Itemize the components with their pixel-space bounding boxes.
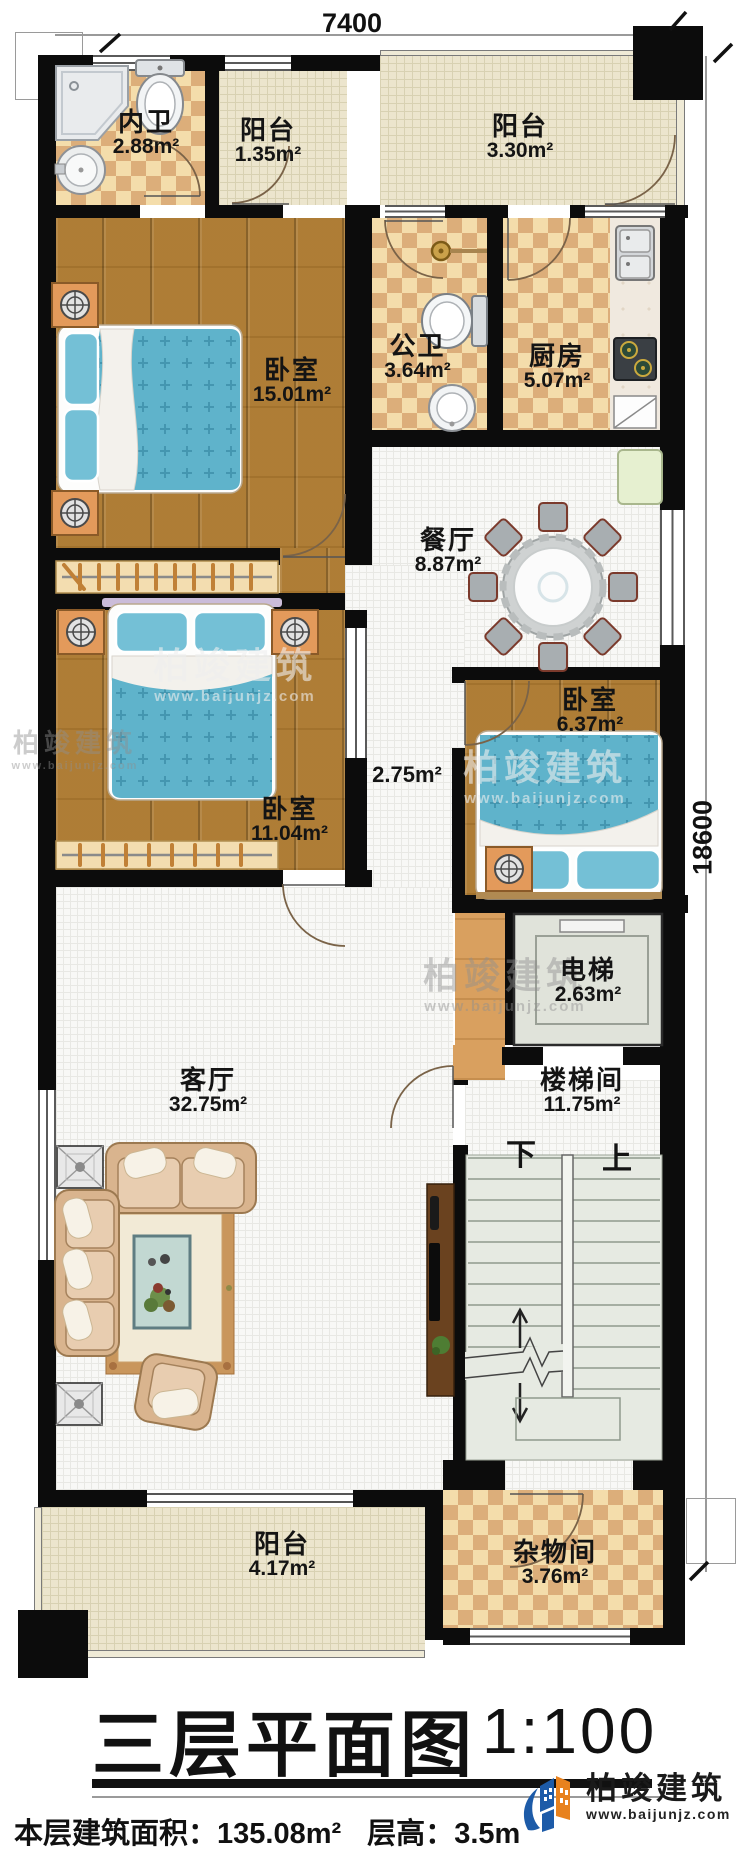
- window-public-bath: [385, 205, 445, 218]
- room-label-bedroom-small: 卧室 6.37m²: [544, 686, 636, 737]
- room-name: 客厅: [152, 1066, 264, 1094]
- window-storage: [470, 1628, 630, 1645]
- wall: [453, 1080, 468, 1085]
- window-kitchen: [585, 205, 665, 218]
- stairs-down-label: 下: [506, 1130, 536, 1174]
- room-area: 3.76m²: [496, 1566, 614, 1589]
- wall: [623, 1047, 663, 1065]
- wall: [502, 1047, 543, 1065]
- room-area: 4.17m²: [232, 1558, 332, 1581]
- stairs-up-label: 上: [602, 1134, 632, 1178]
- room-name: 杂物间: [496, 1538, 614, 1566]
- wall: [38, 593, 345, 610]
- wall: [445, 205, 508, 218]
- footer-area-label: 本层建筑面积：: [14, 1818, 217, 1850]
- wall: [487, 218, 503, 430]
- floor-public-bath: [372, 218, 487, 430]
- room-area: 11.75m²: [518, 1094, 646, 1117]
- room-label-stairwell: 楼梯间 11.75m²: [518, 1066, 646, 1117]
- room-name: 电梯: [528, 956, 648, 984]
- column-top-right: [633, 26, 703, 100]
- room-area: 2.75m²: [368, 763, 446, 787]
- floor-storage-doorway: [505, 1460, 633, 1490]
- plan-title: 三层平面图: [92, 1686, 477, 1791]
- floor-kitchen: [503, 218, 610, 430]
- floor-stairwell: [465, 1080, 663, 1460]
- wall: [353, 1490, 443, 1507]
- room-area: 3.64m²: [370, 360, 465, 383]
- room-name: 阳台: [232, 1530, 332, 1558]
- room-name: 卧室: [238, 356, 346, 384]
- room-label-balcony-top: 阳台 3.30m²: [455, 112, 585, 163]
- wall: [453, 1145, 468, 1490]
- wall: [345, 870, 372, 887]
- wall-right: [660, 218, 685, 510]
- wall: [452, 895, 688, 913]
- wall: [205, 205, 283, 218]
- wall: [630, 1628, 663, 1645]
- watermark-url: www.baijunjz.com: [0, 761, 150, 772]
- room-label-storage: 杂物间 3.76m²: [496, 1538, 614, 1589]
- column-bottom-left: [18, 1610, 88, 1678]
- room-name: 餐厅: [398, 526, 498, 554]
- room-label-hallway: 2.75m²: [368, 763, 446, 787]
- wall: [38, 548, 280, 565]
- window-living-left: [38, 1090, 56, 1260]
- room-label-ensuite-bath: 内卫 2.88m²: [96, 108, 196, 159]
- wall: [663, 1490, 685, 1645]
- room-label-public-bath: 公卫 3.64m²: [370, 332, 465, 383]
- room-name: 卧室: [544, 686, 636, 714]
- room-name: 公卫: [370, 332, 465, 360]
- room-label-living: 客厅 32.75m²: [152, 1066, 264, 1117]
- wall: [633, 1460, 685, 1490]
- watermark-brand: 柏竣建筑: [105, 648, 365, 684]
- wall: [170, 55, 225, 71]
- wall: [345, 205, 380, 218]
- building-logo-icon: [522, 1772, 580, 1834]
- wall: [345, 610, 367, 628]
- wall: [38, 205, 140, 218]
- room-label-bedroom-master: 卧室 15.01m²: [238, 356, 346, 407]
- watermark-url: www.baijunjz.com: [410, 791, 680, 806]
- floor-plan: 7400 18600: [0, 0, 750, 1858]
- wall: [452, 667, 660, 680]
- room-name: 楼梯间: [518, 1066, 646, 1094]
- wall: [345, 218, 372, 565]
- dimension-width-value: 7400: [322, 8, 382, 39]
- wall: [425, 1507, 443, 1640]
- watermark-brand: 柏竣建筑: [410, 750, 680, 786]
- window-top-ensuite: [93, 55, 170, 71]
- wall: [443, 1628, 470, 1645]
- watermark: 柏竣建筑 www.baijunjz.com: [105, 648, 365, 704]
- wall: [665, 205, 688, 218]
- room-area: 1.35m²: [218, 144, 318, 167]
- room-area: 2.63m²: [528, 984, 648, 1007]
- room-name: 阳台: [455, 112, 585, 140]
- kitchen-counter: [610, 218, 660, 430]
- footer-stats: 本层建筑面积：135.08m²层高：3.5m: [14, 1810, 520, 1852]
- wall: [570, 205, 585, 218]
- room-name: 内卫: [96, 108, 196, 136]
- plan-scale: 1:100: [482, 1694, 657, 1768]
- room-label-elevator: 电梯 2.63m²: [528, 956, 648, 1007]
- wall-left: [38, 1260, 56, 1507]
- room-label-balcony-top-left: 阳台 1.35m²: [218, 116, 318, 167]
- watermark-brand: 柏竣建筑: [0, 730, 150, 756]
- footer-height-label: 层高：: [367, 1818, 454, 1850]
- room-area: 11.04m²: [232, 823, 347, 846]
- floor-bedroom-master-door-recess: [280, 548, 345, 593]
- wall: [38, 55, 93, 71]
- wall: [38, 870, 283, 887]
- wall: [372, 430, 660, 447]
- room-name: 阳台: [218, 116, 318, 144]
- room-name: 卧室: [232, 795, 347, 823]
- footer-area-value: 135.08m²: [217, 1818, 341, 1850]
- window-dining-right: [660, 510, 685, 645]
- corner-box-bottom-right: [686, 1498, 736, 1564]
- watermark-url: www.baijunjz.com: [105, 689, 365, 704]
- room-area: 15.01m²: [238, 384, 346, 407]
- room-label-dining: 餐厅 8.87m²: [398, 526, 498, 577]
- room-area: 6.37m²: [544, 714, 636, 737]
- sliding-door-balcony: [147, 1490, 353, 1507]
- wall: [291, 55, 380, 71]
- railing-balcony-bottom: [34, 1650, 425, 1658]
- wall: [345, 758, 367, 870]
- room-area: 32.75m²: [152, 1094, 264, 1117]
- wall: [443, 1460, 505, 1490]
- watermark: 柏竣建筑 www.baijunjz.com: [410, 750, 680, 806]
- wall: [205, 71, 219, 218]
- brand-logo-icon: [522, 1772, 580, 1839]
- footer-height-value: 3.5m: [454, 1818, 520, 1850]
- wall: [452, 667, 465, 683]
- dimension-height-value: 18600: [688, 783, 719, 893]
- room-name: 厨房: [503, 342, 611, 370]
- wall-left: [38, 71, 56, 1090]
- room-label-kitchen: 厨房 5.07m²: [503, 342, 611, 393]
- room-area: 8.87m²: [398, 554, 498, 577]
- room-area: 3.30m²: [455, 140, 585, 163]
- window-top-balcony-left: [225, 55, 291, 71]
- room-label-bedroom-mid: 卧室 11.04m²: [232, 795, 347, 846]
- watermark: 柏竣建筑 www.baijunjz.com: [0, 730, 150, 772]
- wall: [38, 1490, 147, 1507]
- room-label-balcony-bottom: 阳台 4.17m²: [232, 1530, 332, 1581]
- brand-logo: 柏竣建筑 www.baijunjz.com: [522, 1772, 750, 1839]
- room-area: 2.88m²: [96, 136, 196, 159]
- room-area: 5.07m²: [503, 370, 611, 393]
